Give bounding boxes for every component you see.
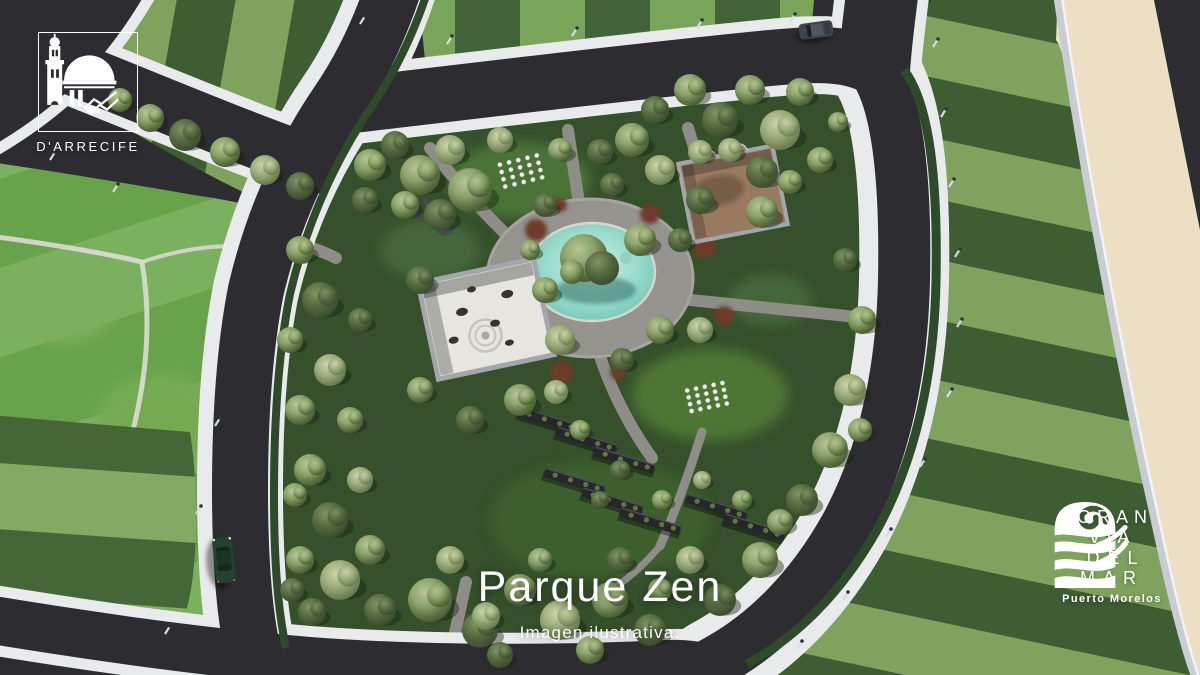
- lawn-glade: [632, 349, 788, 441]
- master-brand: GRAN VÍA DEL MAR Puerto Morelos: [1046, 500, 1178, 605]
- water-gap: [620, 252, 632, 264]
- disclaimer-text: Imagen ilustrativa.: [0, 623, 1200, 643]
- developer-badge-label: D'ARRECIFE: [36, 139, 140, 154]
- park-aerial-render: D'ARRECIFE Parque Zen Imagen ilustrativa…: [0, 0, 1200, 675]
- developer-badge-frame: [38, 32, 138, 132]
- lawn-patch: [2, 258, 118, 342]
- title-block: Parque Zen Imagen ilustrativa.: [0, 566, 1200, 643]
- page-title: Parque Zen: [0, 566, 1200, 609]
- wave-arch-icon: [1046, 500, 1128, 590]
- tower-illustration: [45, 34, 64, 105]
- brand-tagline: Puerto Morelos: [1046, 593, 1178, 605]
- developer-badge: D'ARRECIFE: [36, 32, 140, 154]
- developer-badge-illustration: [36, 32, 122, 118]
- zen-garden: [418, 259, 554, 379]
